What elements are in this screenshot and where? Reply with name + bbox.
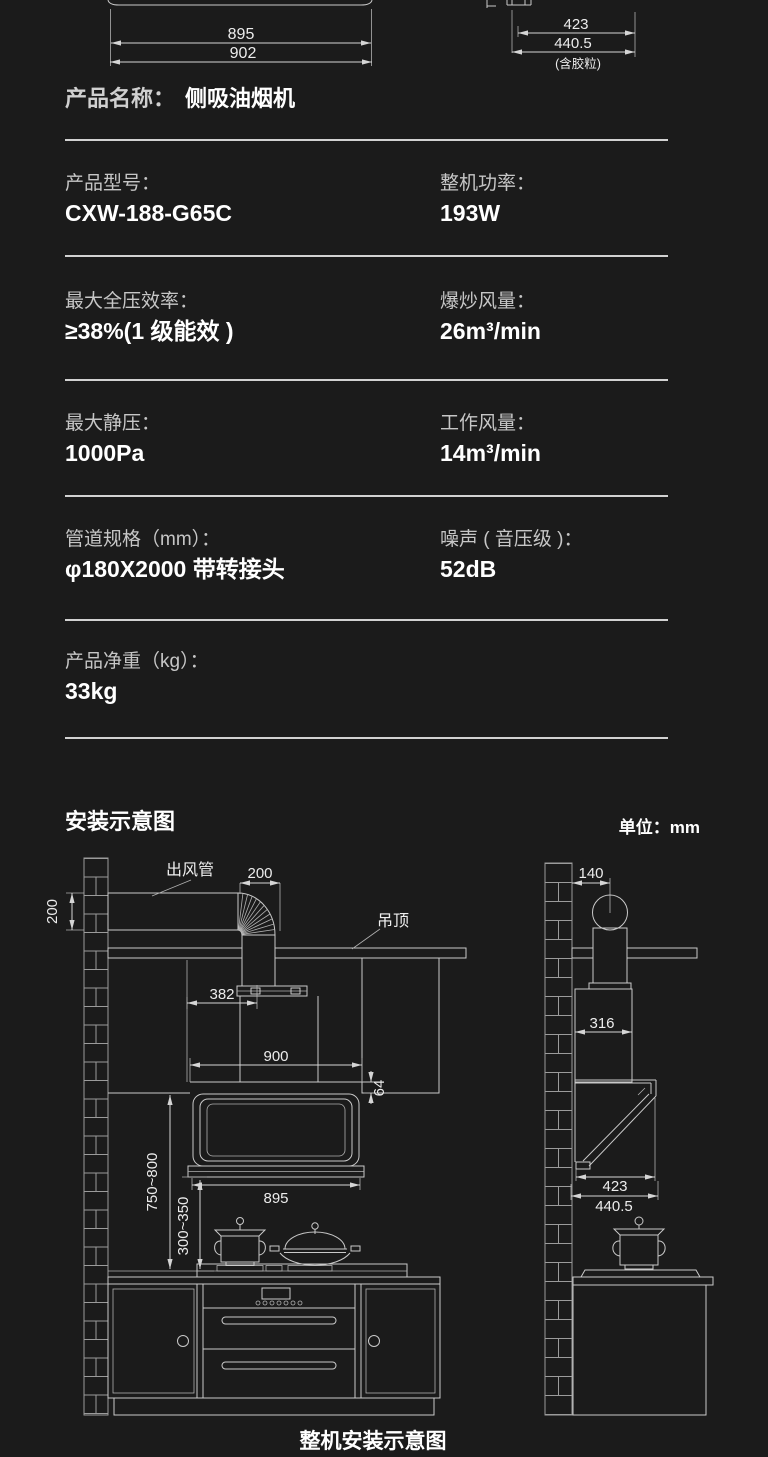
dim-900: 900	[263, 1048, 288, 1065]
dim-316: 316	[589, 1015, 614, 1032]
duct-leader-line	[152, 880, 191, 896]
dim-hood-clearance: 300~350	[175, 1197, 192, 1256]
spec-label-duct-size: 管道规格（mm）：	[65, 528, 220, 552]
ceiling-label: 吊顶	[377, 912, 409, 930]
pot	[215, 1218, 266, 1266]
side-view: 140 316 423 440.5	[545, 863, 713, 1415]
divider	[65, 495, 668, 497]
product-name-value: 侧吸油烟机	[185, 86, 295, 111]
product-name-row: 产品名称：侧吸油烟机	[65, 84, 295, 114]
chimney-housing-sides	[240, 996, 318, 1082]
dim-895: 895	[263, 1190, 288, 1207]
dim-64: 64	[371, 1080, 388, 1097]
wall-bricks-left	[84, 858, 108, 1415]
drawer-handle-top	[222, 1317, 336, 1324]
side-figure-cutoff-marks	[487, 0, 531, 8]
top-dimension-figure: 895 902 423 440.5 (含胶粒)	[0, 0, 768, 80]
oven-buttons	[256, 1301, 302, 1305]
spec-value-boost-airflow: 26m³/min	[440, 316, 541, 346]
dim-duct-height: 200	[44, 899, 61, 924]
spec-value-net-weight: 33kg	[65, 676, 117, 706]
spec-label-model: 产品型号：	[65, 172, 160, 196]
divider	[65, 619, 668, 621]
burner-right	[288, 1266, 332, 1272]
spec-label-noise: 噪声 ( 音压级 )：	[440, 528, 583, 552]
exhaust-duct-vertical	[242, 935, 275, 986]
dim-382: 382	[209, 986, 234, 1003]
extension-lines	[192, 1178, 360, 1190]
drawer-lines	[203, 1308, 355, 1349]
ceiling-hatch-right	[275, 948, 466, 958]
extension-lines	[66, 893, 84, 930]
dim-423: 423	[563, 16, 588, 33]
spec-value-static-pressure: 1000Pa	[65, 438, 144, 468]
dim-install-height: 750~800	[144, 1153, 161, 1212]
dim-423: 423	[602, 1178, 627, 1195]
dim-440-5: 440.5	[554, 35, 592, 52]
drawer-handle-bottom	[222, 1362, 336, 1369]
spec-value-noise: 52dB	[440, 554, 496, 584]
exhaust-duct-side	[593, 928, 627, 983]
ceiling-hatch-side-left	[572, 948, 593, 958]
dim-895: 895	[228, 26, 255, 43]
door-knob-left	[178, 1336, 189, 1347]
product-spec-page: 895 902 423 440.5 (含胶粒) 产品名称：侧吸油烟机 产品型号：…	[0, 0, 768, 1457]
hood-body-outer	[193, 1094, 359, 1166]
dim-902: 902	[230, 45, 257, 62]
ceiling-leader-line	[352, 929, 380, 949]
cabinet-door-right	[366, 1289, 435, 1393]
hood-panel	[207, 1104, 345, 1156]
glue-particle-note: (含胶粒)	[555, 56, 601, 71]
hood-bottom-edge	[108, 0, 372, 5]
ceiling-hatch-left	[108, 948, 242, 958]
spec-value-model: CXW-188-G65C	[65, 198, 232, 228]
spec-label-power: 整机功率：	[440, 172, 535, 196]
spec-label-efficiency: 最大全压效率：	[65, 290, 198, 314]
front-view: 出风管 吊顶 200 200 382 900 64 895	[44, 858, 466, 1415]
countertop-side	[573, 1277, 713, 1285]
oven-display	[262, 1288, 290, 1299]
duct-label: 出风管	[166, 861, 214, 879]
diagram-caption: 整机安装示意图	[300, 1429, 447, 1453]
exhaust-duct-horizontal	[108, 893, 238, 930]
wall-bricks-right	[545, 863, 572, 1415]
burner-center	[266, 1266, 282, 1272]
chimney-cover	[575, 989, 632, 1082]
wok	[270, 1223, 360, 1265]
ceiling-hatch-side-right	[627, 948, 697, 958]
dim-140: 140	[578, 865, 603, 882]
duct-flange	[589, 983, 631, 989]
hob-side	[581, 1270, 700, 1277]
spec-label-boost-airflow: 爆炒风量：	[440, 290, 535, 314]
cabinet	[108, 1284, 440, 1398]
product-name-label: 产品名称：	[65, 86, 175, 111]
spec-value-duct-size: φ180X2000 带转接头	[65, 554, 285, 584]
divider	[65, 255, 668, 257]
dim-440-5: 440.5	[595, 1198, 633, 1215]
spec-label-working-airflow: 工作风量：	[440, 412, 535, 436]
spec-value-working-airflow: 14m³/min	[440, 438, 541, 468]
cabinet-door-left	[113, 1289, 194, 1393]
hood-body-inner	[200, 1099, 352, 1161]
cabinet-side	[573, 1285, 706, 1415]
cabinet-base	[114, 1398, 434, 1415]
dim-elbow: 200	[247, 865, 272, 882]
countertop	[108, 1277, 440, 1284]
burner-left	[217, 1266, 263, 1272]
divider	[65, 139, 668, 141]
divider	[65, 737, 668, 739]
spec-value-efficiency: ≥38%(1 级能效 )	[65, 316, 234, 346]
pot-side	[613, 1217, 665, 1269]
installation-diagram: 出风管 吊顶 200 200 382 900 64 895	[0, 850, 768, 1457]
unit-label: 单位：mm	[619, 813, 700, 838]
spec-value-power: 193W	[440, 198, 500, 228]
side-cabinet-column	[362, 958, 439, 1093]
divider	[65, 379, 668, 381]
door-knob-right	[369, 1336, 380, 1347]
spec-label-net-weight: 产品净重（kg）：	[65, 650, 209, 674]
spec-label-static-pressure: 最大静压：	[65, 412, 160, 436]
duct-elbow-fan-lines	[239, 893, 275, 934]
hood-side-profile	[575, 1080, 656, 1169]
installation-heading: 安装示意图	[65, 804, 175, 836]
